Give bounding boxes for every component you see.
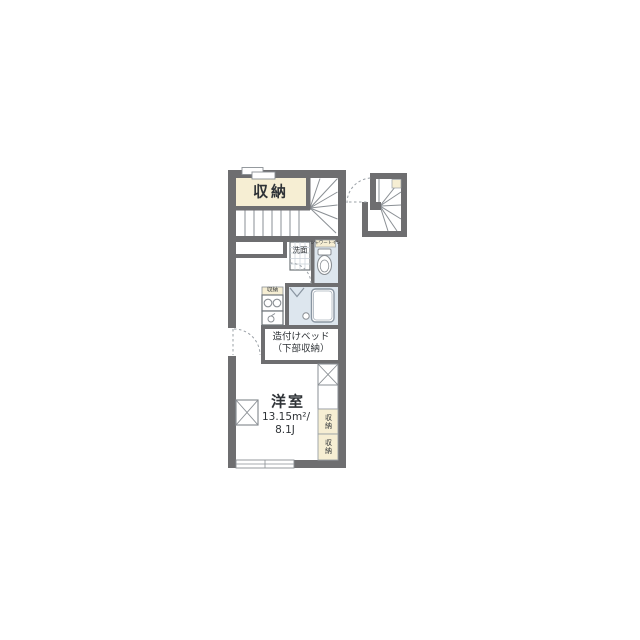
stairwell-newel-block — [370, 202, 381, 210]
sanitary-bottom-wall — [285, 283, 346, 287]
nook-wall-horizontal — [228, 254, 287, 258]
closet-bottom-wall — [228, 206, 310, 211]
right-storage-label-2: 収納 — [325, 439, 332, 455]
floor-plan-svg — [0, 0, 640, 640]
floorplan-image: 収納 洗面 シャワートイレ 収納 造付けベッド （下部収納） 洋室 13.15m… — [0, 0, 640, 640]
cross-box-left — [236, 400, 258, 425]
bed-label-line1: 造付けベッド — [272, 332, 329, 342]
right-storage-label-1: 収納 — [325, 414, 332, 430]
room-area-label: 13.15m²/ — [262, 412, 310, 423]
bed-left-wall — [261, 325, 265, 364]
stairwell-left-lower-wall — [362, 202, 368, 237]
stairwell-bottom-wall — [362, 231, 407, 237]
toilet-tank — [318, 249, 331, 255]
empty-box-right — [318, 385, 338, 409]
bathtub — [312, 289, 335, 322]
bed-label-line2: （下部収納） — [272, 344, 329, 354]
bath-drain-icon — [303, 313, 309, 319]
toilet-partition-wall — [311, 242, 315, 287]
stove-burner-left — [264, 299, 272, 307]
bed-bottom-wall — [261, 360, 346, 364]
bathroom-left-wall — [285, 283, 289, 325]
room-tatami-label: 8.1J — [275, 425, 295, 436]
room-label: 洋室 — [271, 395, 305, 410]
stairwell-corner-box — [392, 180, 401, 189]
washroom-label: 洗面 — [293, 246, 308, 254]
bathroom-bottom-wall — [261, 325, 346, 329]
stairwell-right-wall — [401, 173, 407, 237]
bottom-window — [236, 460, 294, 468]
kitchen-sink — [262, 311, 283, 325]
kitchen-storage-label: 収納 — [267, 288, 278, 294]
stove-burner-right — [273, 299, 281, 307]
closet-label: 収納 — [253, 185, 289, 200]
closet-right-wall — [306, 178, 311, 210]
toilet-label: シャワートイレ — [310, 241, 340, 245]
